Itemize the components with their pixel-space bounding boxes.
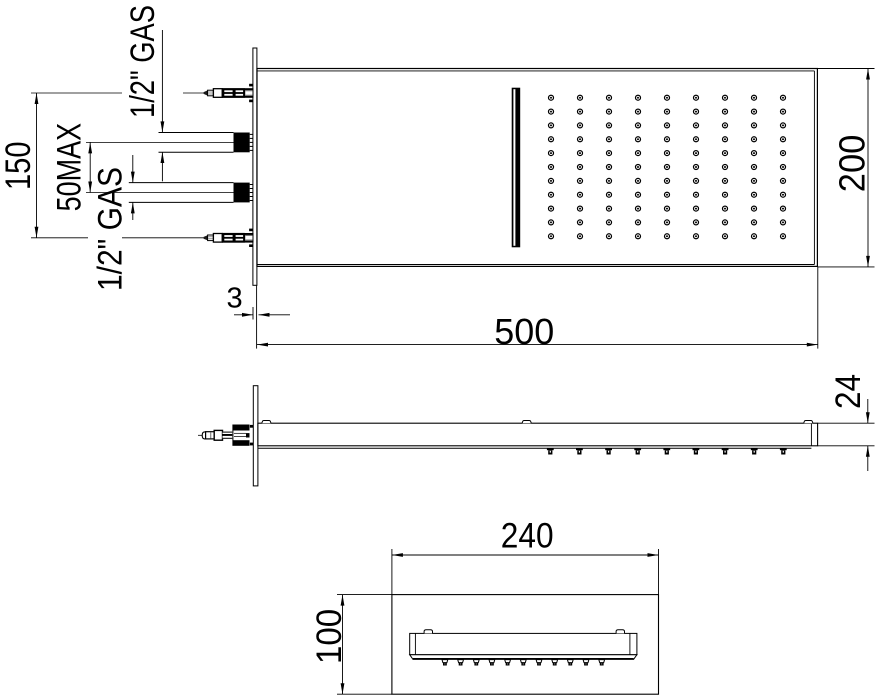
- svg-text:1/2" GAS: 1/2" GAS: [92, 167, 130, 291]
- svg-text:1/2" GAS: 1/2" GAS: [124, 5, 162, 118]
- svg-text:50MAX: 50MAX: [51, 123, 89, 212]
- svg-text:240: 240: [501, 517, 554, 556]
- svg-text:3: 3: [227, 283, 243, 315]
- svg-text:500: 500: [494, 311, 554, 352]
- svg-text:24: 24: [829, 374, 868, 409]
- svg-text:200: 200: [832, 135, 873, 193]
- svg-text:150: 150: [0, 142, 38, 191]
- svg-text:100: 100: [310, 609, 349, 664]
